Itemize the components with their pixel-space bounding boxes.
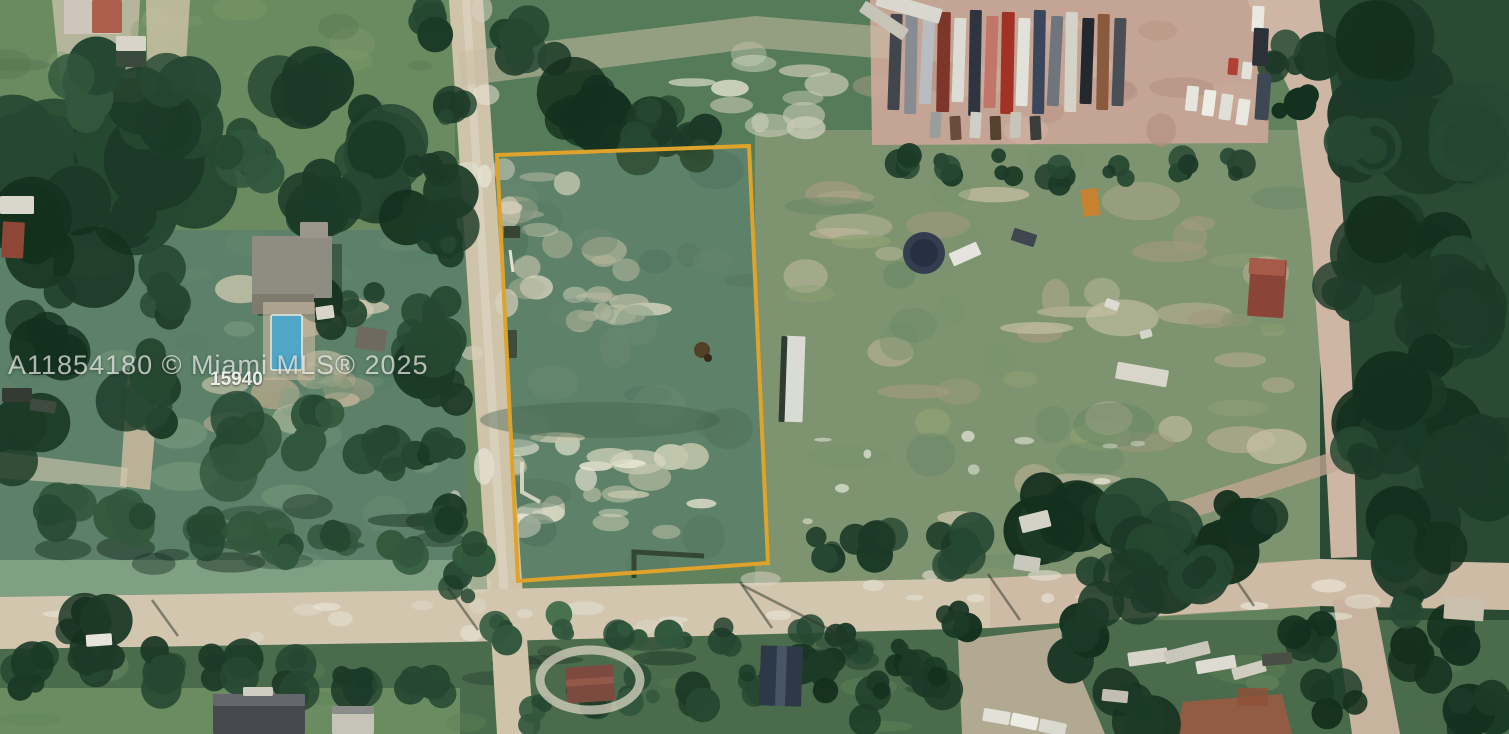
ground-mottle: [935, 295, 965, 328]
tree-blob: [347, 120, 406, 179]
ground-mottle: [1102, 444, 1117, 449]
tree-blob: [211, 391, 265, 445]
ground-mottle: [968, 464, 980, 474]
tree-blob: [1448, 688, 1474, 714]
tree-blob: [811, 544, 838, 571]
tree-blob: [417, 17, 453, 53]
truck: [929, 112, 942, 139]
tree-blob: [363, 282, 384, 303]
tree-blob: [1347, 443, 1373, 469]
tree-blob: [1161, 546, 1187, 572]
ground-mottle: [1149, 77, 1213, 98]
ground-mottle: [1014, 437, 1034, 444]
ground-mottle: [967, 594, 985, 602]
truck: [1000, 12, 1015, 114]
ground-mottle: [935, 378, 980, 405]
tree-blob: [1178, 154, 1198, 174]
tree-blob: [897, 143, 922, 168]
truck: [1064, 12, 1078, 112]
ground-mottle: [832, 234, 891, 248]
ground-mottle: [328, 611, 353, 626]
tree-blob: [1272, 103, 1288, 119]
tree-blob: [1251, 497, 1288, 534]
ground-mottle: [460, 625, 482, 642]
car: [1227, 58, 1238, 76]
ground-mottle: [132, 553, 176, 575]
ground-mottle: [784, 285, 835, 303]
tree-blob: [873, 682, 890, 699]
tree-blob: [427, 679, 456, 708]
ground-mottle: [814, 438, 831, 442]
tree-blob: [155, 285, 191, 321]
tree-blob: [1428, 267, 1507, 346]
vehicle: [2, 388, 32, 402]
ground-mottle: [1073, 403, 1154, 447]
ground-mottle: [1247, 429, 1307, 464]
tree-blob: [949, 512, 994, 557]
ground-mottle: [474, 448, 494, 485]
ground-mottle: [35, 539, 91, 561]
ground-mottle: [803, 518, 813, 524]
tree-blob: [361, 428, 391, 458]
tree-blob: [1228, 166, 1243, 181]
tree-blob: [138, 245, 186, 293]
tree-blob: [1130, 699, 1155, 724]
building-roof: [332, 706, 374, 714]
tree-blob: [561, 627, 575, 641]
ground-mottle: [805, 446, 893, 468]
structure: [0, 196, 34, 214]
tree-blob: [129, 503, 156, 530]
truck: [1096, 14, 1110, 110]
ground-mottle: [473, 84, 500, 105]
ground-mottle: [1311, 579, 1346, 592]
tree-blob: [813, 678, 838, 703]
tree-blob: [1102, 165, 1115, 178]
ground-mottle: [0, 713, 62, 725]
ground-mottle: [1146, 113, 1176, 147]
tree-blob: [67, 95, 105, 133]
tree-blob: [209, 135, 244, 170]
tree-blob: [637, 98, 662, 123]
tree-blob: [1346, 196, 1413, 263]
tree-blob: [492, 625, 523, 656]
tree-blob: [1076, 598, 1110, 632]
ground-mottle: [1102, 182, 1180, 220]
tree-blob: [1047, 155, 1072, 180]
tree-blob: [1414, 521, 1467, 574]
tree-blob: [1003, 166, 1023, 186]
tree-blob: [1390, 626, 1429, 665]
truck: [990, 116, 1002, 140]
ground-mottle: [710, 97, 753, 113]
tree-blob: [315, 398, 345, 428]
ground-mottle: [740, 572, 780, 587]
tree-blob: [438, 109, 454, 125]
tree-blob: [739, 664, 756, 681]
building: [1443, 597, 1484, 622]
ground-mottle: [961, 431, 974, 442]
ground-mottle: [1000, 322, 1073, 334]
ground-mottle: [407, 61, 433, 71]
ground-mottle: [907, 433, 956, 477]
truck: [904, 10, 918, 114]
tree-blob: [195, 506, 225, 536]
tree-blob: [714, 617, 734, 637]
parcel-boundary-outline: [497, 146, 768, 581]
tree-blob: [1336, 0, 1415, 79]
tree-blob: [1312, 698, 1343, 729]
ground-patch: [1238, 688, 1268, 706]
ground-mottle: [1240, 602, 1268, 610]
tree-blob: [1474, 680, 1509, 716]
tree-blob: [1192, 556, 1216, 580]
tree-blob: [48, 53, 94, 99]
ground-mottle: [979, 339, 1016, 377]
ground-mottle: [632, 651, 696, 665]
tree-blob: [942, 610, 970, 638]
ground-mottle: [224, 321, 255, 336]
tree-blob: [1375, 514, 1418, 557]
truck: [968, 10, 982, 116]
tree-blob: [139, 53, 194, 108]
ground-mottle: [863, 580, 885, 591]
tree-blob: [461, 589, 476, 604]
ground-mottle: [915, 408, 950, 436]
tree-blob: [403, 155, 426, 178]
ground-mottle: [1042, 279, 1070, 317]
building: [116, 36, 146, 51]
structure: [1, 221, 25, 258]
tree-blob: [617, 622, 631, 636]
ground-mottle: [905, 595, 923, 601]
tree-blob: [8, 675, 33, 700]
tree-blob: [149, 655, 176, 682]
truck: [1032, 10, 1046, 114]
tree-blob: [44, 276, 77, 309]
tree-blob: [928, 667, 948, 687]
building: [355, 326, 388, 352]
ground-mottle: [283, 494, 333, 519]
tree-blob: [435, 506, 464, 535]
tree-blob: [1117, 169, 1135, 187]
water-tank-center: [910, 239, 938, 267]
tree-blob: [673, 637, 686, 650]
tree-blob: [1312, 261, 1361, 310]
ground-mottle: [313, 603, 341, 611]
tree-blob: [934, 155, 961, 182]
tree-blob: [120, 379, 172, 431]
tree-blob: [1214, 490, 1242, 518]
tree-blob: [685, 687, 720, 722]
ground-mottle: [478, 165, 492, 188]
ground-mottle: [1041, 593, 1054, 603]
ground-mottle: [1130, 441, 1145, 447]
tree-blob: [858, 521, 894, 557]
ground-mottle: [517, 609, 533, 618]
ground-mottle: [890, 308, 937, 342]
building: [116, 51, 146, 67]
car: [1241, 62, 1253, 80]
ground-mottle: [318, 14, 359, 40]
truck: [1029, 116, 1041, 141]
ground-mottle: [1262, 377, 1295, 393]
tree-blob: [719, 634, 742, 657]
tree-blob: [33, 494, 65, 526]
ground-mottle: [864, 449, 872, 458]
ground-mottle: [1138, 21, 1177, 41]
tree-blob: [1277, 615, 1311, 649]
ground-mottle: [711, 80, 749, 97]
ground-mottle: [766, 610, 791, 620]
tree-blob: [1300, 669, 1334, 703]
ground-mottle: [731, 55, 776, 72]
building-roof: [775, 646, 787, 706]
tree-blob: [499, 19, 537, 57]
truck: [949, 116, 961, 141]
ground-mottle: [835, 484, 849, 493]
tree-blob: [273, 544, 299, 570]
ground-mottle: [1035, 406, 1070, 443]
truck: [1252, 28, 1269, 67]
building: [243, 687, 273, 696]
tree-blob: [292, 424, 326, 458]
ground-mottle: [1003, 371, 1037, 388]
tree-blob: [332, 666, 351, 685]
tree-blob: [1326, 116, 1372, 162]
tree-blob: [991, 148, 1006, 163]
tree-blob: [1297, 84, 1319, 106]
ground-mottle: [1173, 220, 1208, 252]
tree-blob: [1353, 351, 1432, 430]
ground-mottle: [668, 78, 716, 86]
building: [315, 305, 335, 320]
ground-mottle: [745, 114, 795, 138]
tree-blob: [1389, 595, 1423, 629]
lot-number-label: 15940: [210, 369, 263, 391]
tree-blob: [620, 121, 651, 152]
ground-mottle: [783, 91, 824, 106]
ground-mottle: [1214, 352, 1266, 367]
tree-blob: [198, 644, 225, 671]
estate-house: [252, 236, 332, 298]
aerial-photo-root: A11854180 © Miami MLS® 2025 15940: [0, 0, 1509, 734]
trailer: [1248, 258, 1285, 276]
ground-mottle: [1208, 400, 1268, 417]
tree-blob: [1220, 148, 1237, 165]
ground-mottle: [411, 601, 433, 611]
tree-blob: [392, 538, 429, 575]
tree-blob: [440, 237, 456, 253]
car: [86, 633, 113, 647]
ground-mottle: [446, 713, 487, 732]
tree-blob: [271, 65, 335, 129]
truck: [969, 112, 981, 139]
tree-blob: [461, 531, 487, 557]
ground-mottle: [1345, 594, 1381, 609]
ground-mottle: [875, 247, 903, 261]
tree-blob: [428, 164, 447, 183]
tree-blob: [891, 639, 907, 655]
tree-blob: [353, 667, 374, 688]
ground-mottle: [785, 197, 874, 215]
ground-mottle: [1093, 478, 1110, 485]
building: [92, 0, 122, 33]
tree-blob: [320, 521, 350, 551]
building: [300, 222, 328, 238]
truck: [1010, 112, 1022, 138]
tree-blob: [244, 153, 284, 193]
truck: [936, 12, 951, 112]
tree-blob: [422, 298, 443, 319]
tree-blob: [1343, 690, 1368, 715]
tree-blob: [399, 666, 428, 695]
tree-blob: [646, 690, 660, 704]
